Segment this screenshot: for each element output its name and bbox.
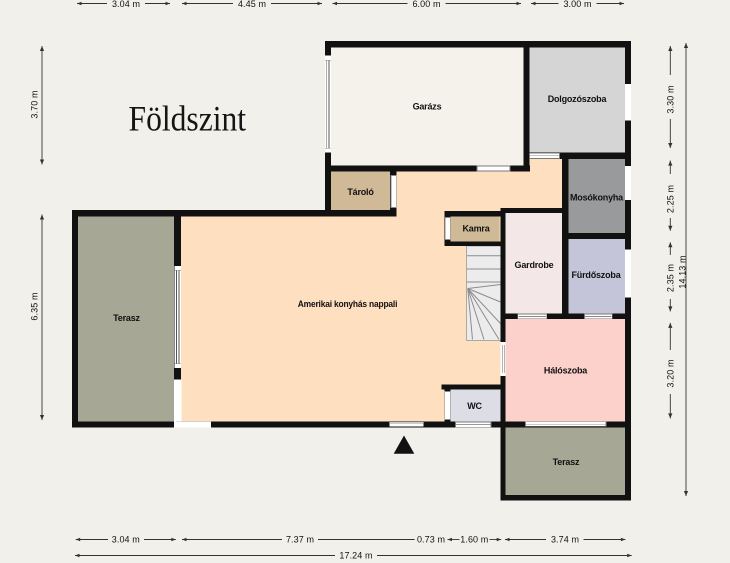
svg-text:1.60 m: 1.60 m [460, 535, 488, 545]
svg-text:Terasz: Terasz [553, 457, 580, 467]
svg-text:2.35 m: 2.35 m [666, 264, 676, 292]
svg-text:Fürdőszoba: Fürdőszoba [572, 270, 622, 280]
svg-text:4.45 m: 4.45 m [238, 0, 266, 9]
svg-text:Tároló: Tároló [347, 187, 374, 197]
svg-text:Hálószoba: Hálószoba [544, 365, 588, 375]
svg-text:3.04 m: 3.04 m [112, 535, 140, 545]
svg-text:Terasz: Terasz [113, 313, 140, 323]
svg-text:2.25 m: 2.25 m [666, 185, 676, 213]
svg-text:Földszint: Földszint [129, 99, 247, 139]
svg-text:Kamra: Kamra [462, 223, 490, 233]
svg-text:6.35 m: 6.35 m [30, 292, 40, 320]
svg-text:Garázs: Garázs [413, 102, 442, 112]
svg-text:3.30 m: 3.30 m [666, 85, 676, 113]
svg-text:Dolgozószoba: Dolgozószoba [548, 94, 608, 104]
svg-text:3.04 m: 3.04 m [112, 0, 140, 9]
svg-text:Gardrobe: Gardrobe [515, 260, 554, 270]
svg-text:3.00 m: 3.00 m [563, 0, 591, 9]
svg-text:Mosókonyha: Mosókonyha [570, 193, 624, 203]
svg-text:17.24 m: 17.24 m [339, 551, 372, 561]
svg-text:7.37 m: 7.37 m [286, 535, 314, 545]
svg-text:3.70 m: 3.70 m [30, 90, 40, 118]
svg-text:0.73 m: 0.73 m [417, 535, 445, 545]
svg-text:3.74 m: 3.74 m [551, 535, 579, 545]
svg-text:3.20 m: 3.20 m [666, 359, 676, 387]
svg-text:WC: WC [467, 401, 482, 411]
svg-text:6.00 m: 6.00 m [412, 0, 440, 9]
svg-text:14.13 m: 14.13 m [678, 255, 688, 288]
svg-text:Amerikai konyhás nappali: Amerikai konyhás nappali [298, 299, 398, 309]
